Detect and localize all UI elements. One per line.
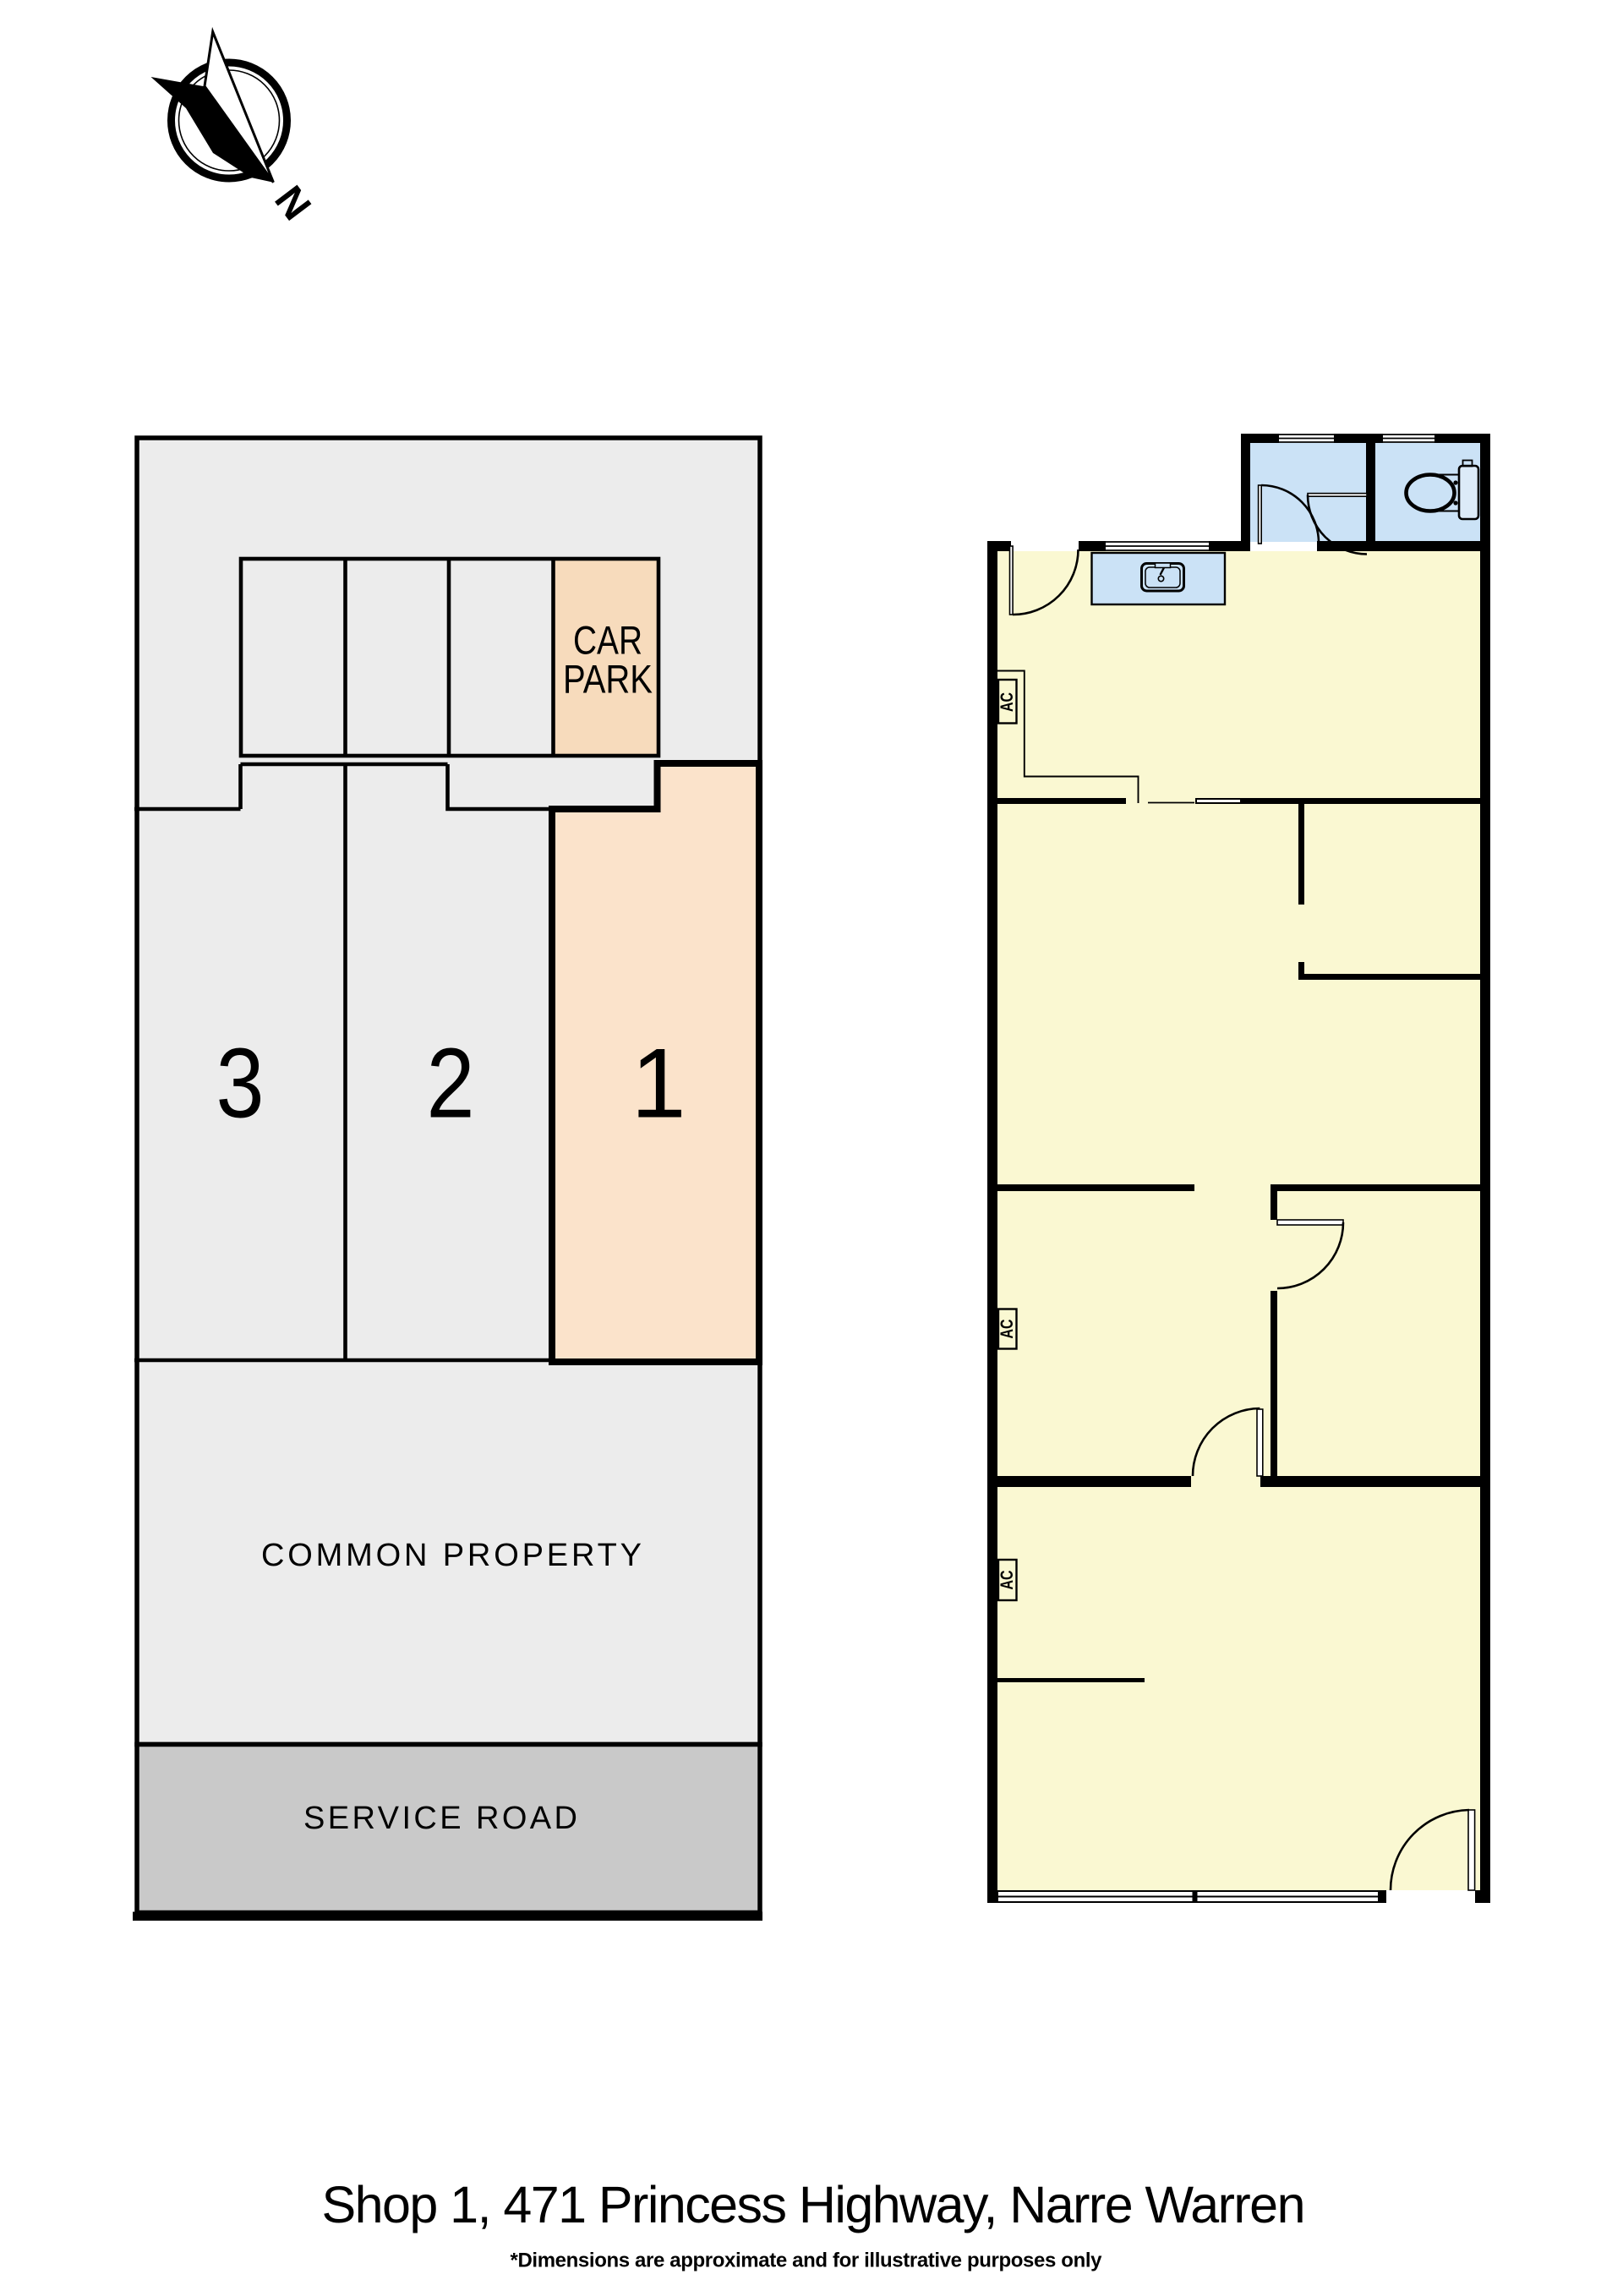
svg-text:3: 3 xyxy=(216,1028,265,1139)
svg-text:AC: AC xyxy=(997,692,1017,712)
svg-text:COMMON PROPERTY: COMMON PROPERTY xyxy=(261,1538,642,1573)
svg-text:2: 2 xyxy=(427,1028,475,1139)
svg-text:Shop 1, 471 Princess Highway,: Shop 1, 471 Princess Highway, Narre Warr… xyxy=(322,2176,1306,2233)
svg-text:*Dimensions are approximate an: *Dimensions are approximate and for illu… xyxy=(511,2250,1103,2272)
svg-text:PARK: PARK xyxy=(563,657,653,702)
svg-text:AC: AC xyxy=(997,1571,1017,1590)
svg-text:AC: AC xyxy=(997,1320,1017,1339)
svg-text:SERVICE ROAD: SERVICE ROAD xyxy=(303,1801,577,1836)
svg-text:1: 1 xyxy=(631,1028,686,1139)
